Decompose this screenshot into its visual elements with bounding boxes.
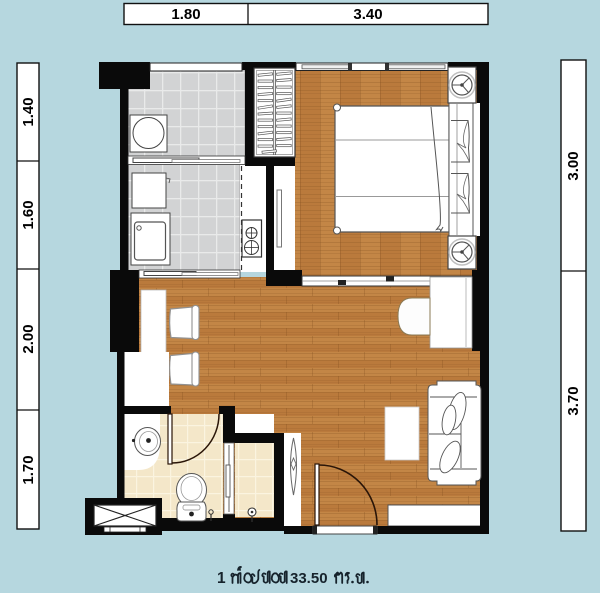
svg-text:1: 1 — [217, 570, 226, 587]
svg-text:2.00: 2.00 — [20, 324, 37, 353]
svg-text:1.80: 1.80 — [171, 6, 200, 23]
svg-text:1.60: 1.60 — [20, 200, 37, 229]
svg-text:1.40: 1.40 — [20, 97, 37, 126]
svg-text:3.00: 3.00 — [565, 151, 582, 180]
svg-text:3.40: 3.40 — [353, 6, 382, 23]
svg-text:3.70: 3.70 — [565, 386, 582, 415]
svg-text:33.50: 33.50 — [290, 570, 328, 587]
svg-text:1.70: 1.70 — [20, 455, 37, 484]
